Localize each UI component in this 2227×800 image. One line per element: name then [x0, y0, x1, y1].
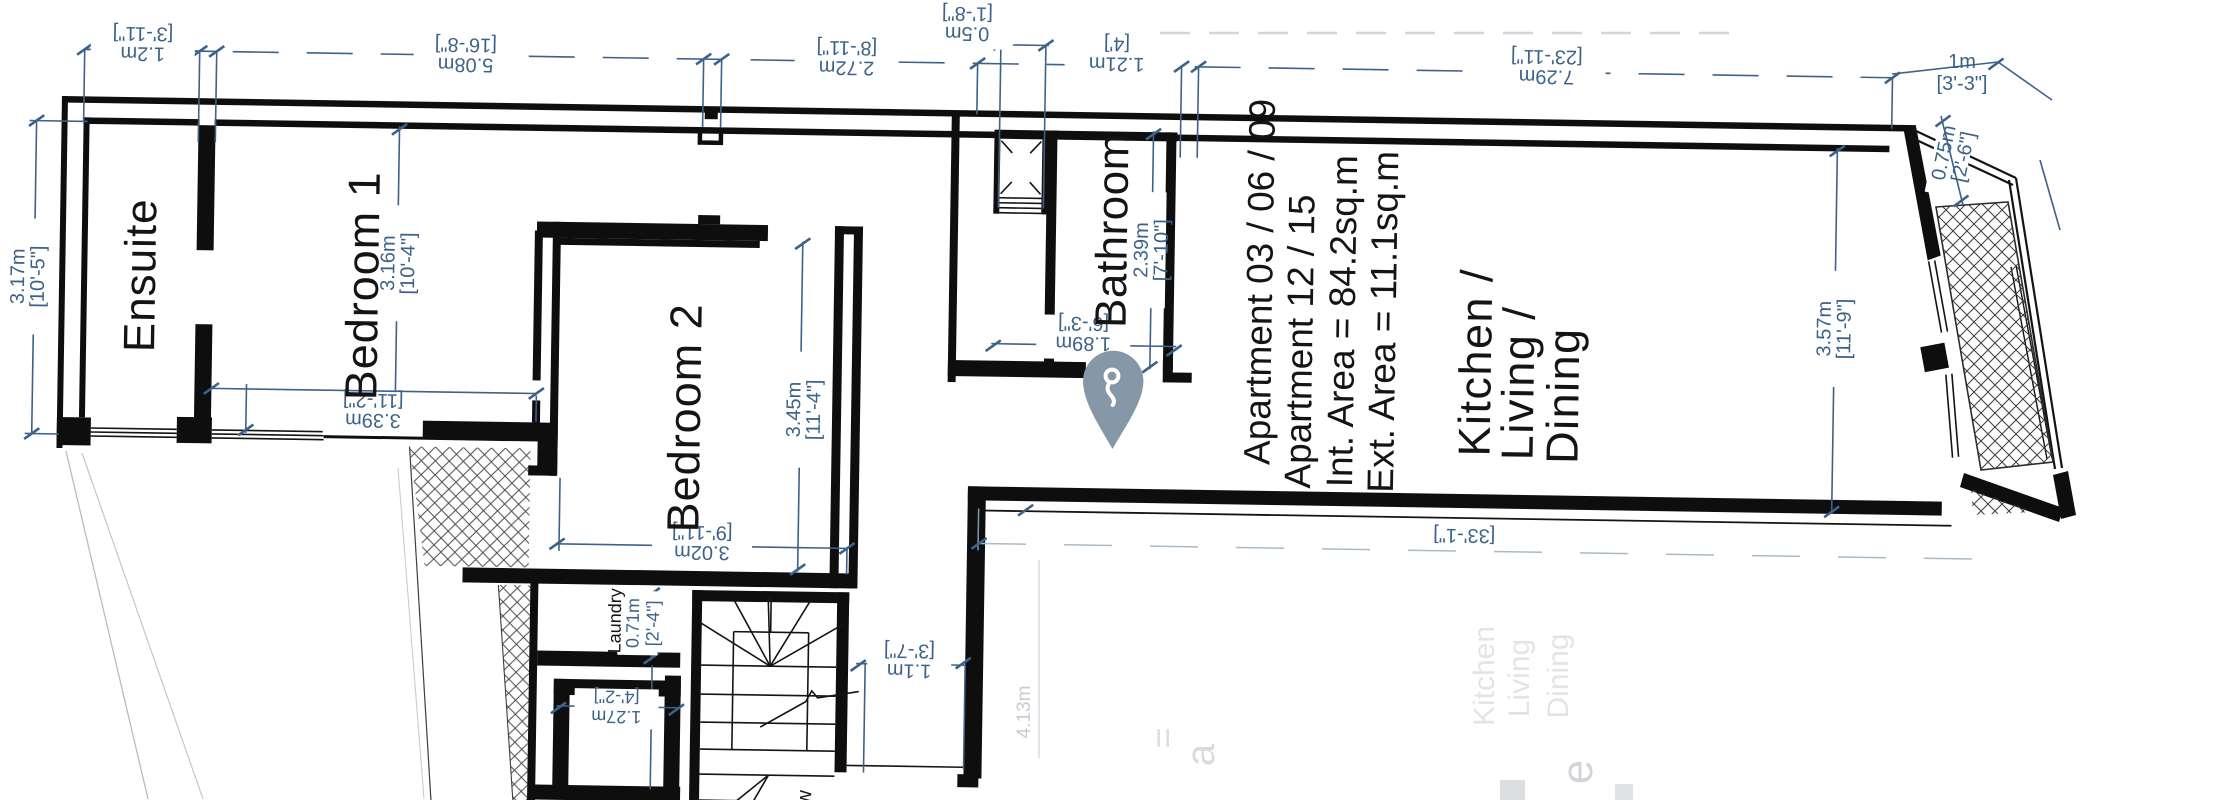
- svg-text:Apartment 12 / 15: Apartment 12 / 15: [1277, 194, 1323, 489]
- svg-text:0.5m[1'-8"]: 0.5m[1'-8"]: [941, 2, 993, 45]
- svg-text:Apartment 03 / 06 / 09: Apartment 03 / 06 / 09: [1236, 98, 1283, 465]
- svg-text:Bedroom 2: Bedroom 2: [657, 303, 712, 533]
- svg-text:0.71m[2'-4"]: 0.71m[2'-4"]: [622, 598, 663, 649]
- svg-text:Bathroom: Bathroom: [1086, 133, 1138, 329]
- svg-text:1.27m[4'-2"]: 1.27m[4'-2"]: [591, 686, 642, 727]
- svg-text:1.1m[3'-7"]: 1.1m[3'-7"]: [883, 639, 935, 682]
- svg-text:Int. Area = 84.2sq.m: Int. Area = 84.2sq.m: [1319, 155, 1365, 488]
- svg-text:2.72m[8'-11"]: 2.72m[8'-11"]: [816, 36, 877, 79]
- svg-text:3.45m[11'-4"]: 3.45m[11'-4"]: [783, 379, 826, 440]
- svg-text:Ensuite: Ensuite: [115, 198, 166, 353]
- svg-text:e: e: [1553, 760, 1602, 784]
- svg-text:4.13m: 4.13m: [1014, 686, 1035, 739]
- svg-text:7.29m[23'-11"]: 7.29m[23'-11"]: [1510, 45, 1582, 88]
- svg-text:1.2m[3'-11"]: 1.2m[3'-11"]: [112, 22, 173, 65]
- svg-text:Dining: Dining: [1542, 633, 1575, 718]
- svg-text:Dining: Dining: [1536, 327, 1589, 464]
- svg-text:=: =: [1142, 727, 1183, 748]
- svg-text:Ext. Area = 11.1sq.m: Ext. Area = 11.1sq.m: [1360, 151, 1406, 493]
- svg-text:5.08m[16'-8"]: 5.08m[16'-8"]: [434, 33, 497, 76]
- svg-text:a: a: [1179, 743, 1223, 766]
- svg-text:Bedroom 1: Bedroom 1: [335, 171, 390, 401]
- svg-text:3.57m[11'-9"]: 3.57m[11'-9"]: [1813, 298, 1856, 359]
- svg-text:3.17m[10'-5"]: 3.17m[10'-5"]: [7, 245, 50, 308]
- svg-text:Kitchen: Kitchen: [1468, 626, 1501, 726]
- svg-text:Laundry: Laundry: [604, 588, 625, 653]
- svg-text:[33'-1"]: [33'-1"]: [1433, 524, 1495, 547]
- svg-text:w: w: [793, 789, 816, 800]
- svg-text:Living: Living: [1503, 639, 1536, 717]
